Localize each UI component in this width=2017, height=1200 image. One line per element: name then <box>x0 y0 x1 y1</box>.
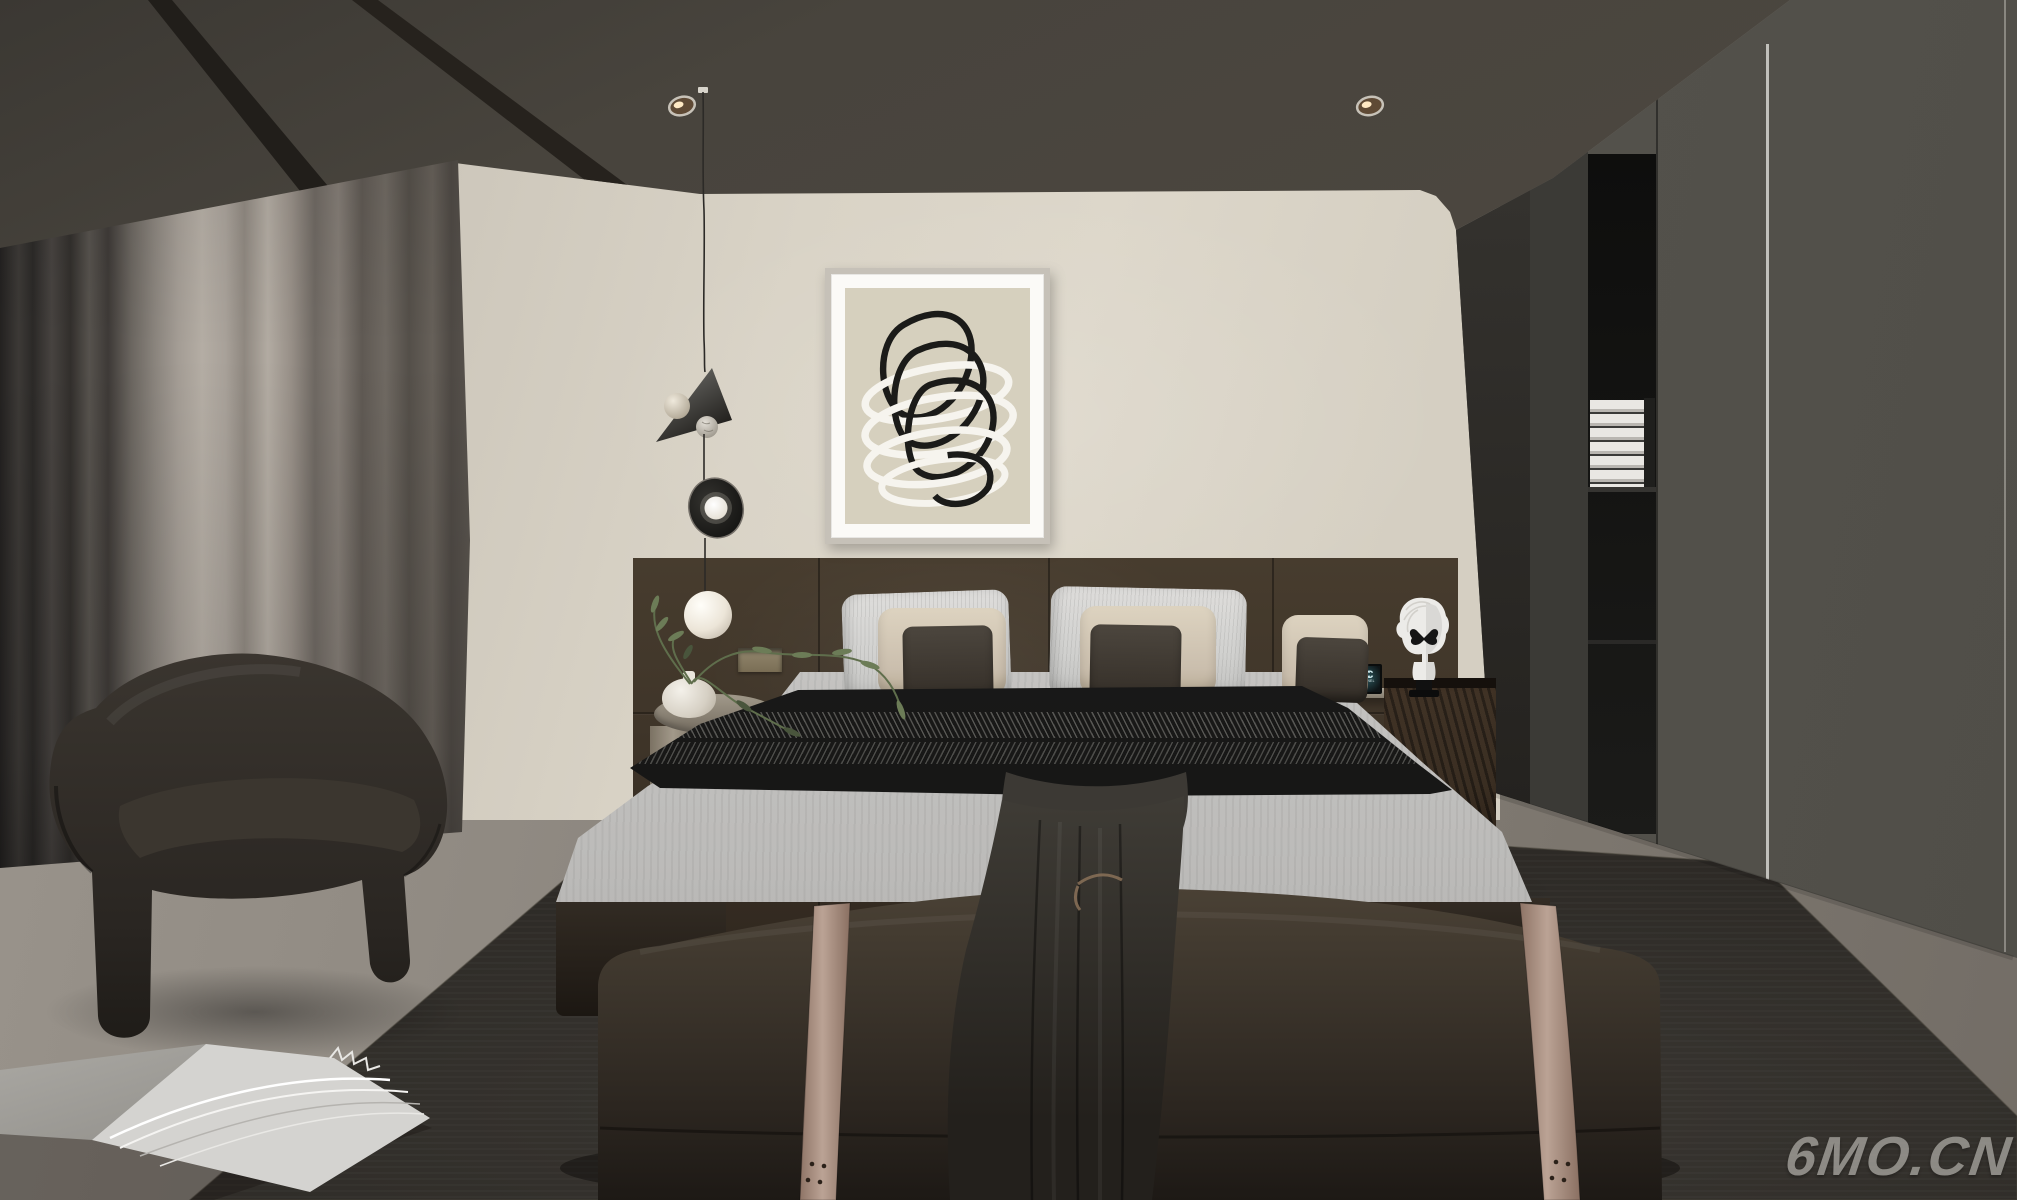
foreground <box>0 0 2017 1200</box>
open-magazine <box>0 1044 432 1200</box>
draped-blanket <box>948 772 1188 1200</box>
wall-floor-shadow <box>1492 794 2013 958</box>
bedroom-render: CC CHANEL <box>0 0 2017 1200</box>
watermark: 6MO.CN <box>1782 1124 2017 1188</box>
